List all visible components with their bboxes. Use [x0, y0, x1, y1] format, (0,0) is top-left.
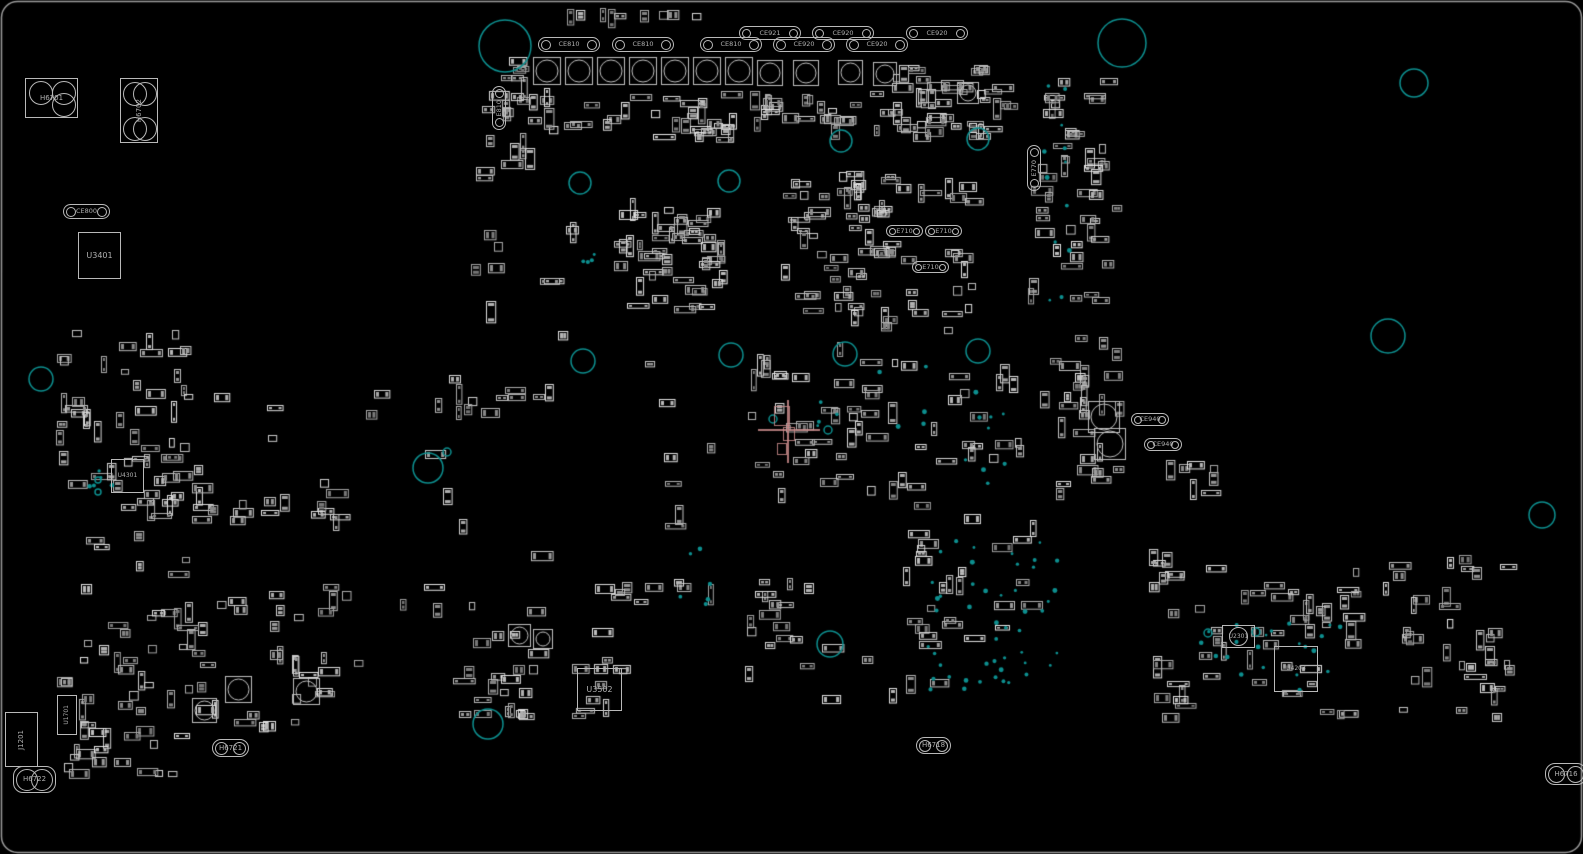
component-label: U1701 [64, 705, 70, 725]
pad-circle [703, 40, 713, 50]
pad-circle [66, 207, 76, 217]
component-e810[interactable]: E810 [492, 86, 506, 130]
pad-circle [495, 89, 504, 98]
component-label: CE940 [1139, 416, 1160, 423]
component-ce920[interactable]: CE920 [773, 37, 835, 52]
component-label: CE810 [632, 41, 653, 48]
pad-circle [895, 40, 905, 50]
component-e710[interactable]: E710 [925, 225, 962, 237]
component-h6702[interactable]: H6702 [120, 78, 158, 143]
component-label: U2301 [1229, 634, 1249, 640]
pcb-board-view[interactable]: H6701H6702CE800U3401CE810CE810CE810CE920… [0, 0, 1583, 854]
component-h6722[interactable]: H6722 [13, 766, 56, 793]
component-ce920[interactable]: CE920 [846, 37, 908, 52]
component-u4301[interactable]: U4301 [111, 459, 144, 493]
component-h6718[interactable]: H6718 [916, 737, 951, 754]
pad-circle [97, 207, 107, 217]
pad-circle [849, 40, 859, 50]
component-u3401[interactable]: U3401 [78, 232, 121, 279]
component-j1201[interactable]: J1201 [5, 712, 38, 767]
component-label: CE921 [759, 30, 780, 37]
pad-circle [889, 228, 896, 235]
pad-circle [615, 40, 625, 50]
component-label: H6702 [136, 99, 143, 122]
pad-circle [952, 228, 959, 235]
pad-circle [742, 29, 751, 38]
component-label: CE920 [926, 30, 947, 37]
component-h6716[interactable]: H6716 [1545, 763, 1583, 785]
component-label: U4301 [118, 473, 138, 479]
pad-circle [789, 29, 798, 38]
pad-circle [939, 264, 946, 271]
component-label: U3502 [586, 686, 612, 694]
pad-circle [862, 29, 871, 38]
pad-circle [928, 228, 935, 235]
pad-circle [1030, 179, 1039, 188]
component-ce940[interactable]: CE940 [1131, 413, 1169, 426]
pad-circle [495, 118, 504, 127]
component-label: J1201 [18, 730, 25, 750]
component-u1701[interactable]: U1701 [57, 695, 77, 735]
pad-circle [749, 40, 759, 50]
component-e710[interactable]: E710 [912, 261, 949, 273]
pad-circle [915, 264, 922, 271]
component-label: E770 [1031, 160, 1038, 177]
pad-circle [815, 29, 824, 38]
component-label: CE940 [1152, 441, 1173, 448]
component-ce800[interactable]: CE800 [63, 204, 110, 219]
pad-circle [776, 40, 786, 50]
component-label: E710 [896, 228, 913, 235]
component-ce920[interactable]: CE920 [906, 26, 968, 40]
component-label: CE920 [793, 41, 814, 48]
component-ce810[interactable]: CE810 [700, 37, 762, 52]
component-label: H6716 [1554, 771, 1577, 778]
component-label: U4203 [1286, 666, 1306, 672]
component-label: CE810 [558, 41, 579, 48]
component-label: H6701 [40, 95, 63, 102]
pad-circle [909, 29, 918, 38]
component-ce810[interactable]: CE810 [538, 37, 600, 52]
board-silkscreen-canvas [0, 0, 1583, 854]
component-ce940[interactable]: CE940 [1144, 438, 1182, 451]
component-e770[interactable]: E770 [1027, 145, 1041, 191]
component-u2301[interactable]: U2301 [1222, 625, 1255, 648]
component-label: U3401 [86, 252, 112, 260]
pad-circle [822, 40, 832, 50]
pad-circle [541, 40, 551, 50]
pad-circle [587, 40, 597, 50]
component-label: E810 [496, 100, 503, 117]
component-label: E710 [922, 264, 939, 271]
component-label: E710 [935, 228, 952, 235]
pad-circle [1030, 148, 1039, 157]
component-h6721[interactable]: H6721 [212, 739, 249, 757]
component-label: CE920 [832, 30, 853, 37]
component-h6701[interactable]: H6701 [25, 78, 78, 118]
component-ce920[interactable]: CE920 [812, 26, 874, 40]
component-u3502[interactable]: U3502 [577, 668, 622, 711]
component-label: H6718 [922, 742, 945, 749]
component-label: H6722 [23, 776, 46, 783]
component-label: CE810 [720, 41, 741, 48]
component-ce810[interactable]: CE810 [612, 37, 674, 52]
pad-circle [913, 228, 920, 235]
component-label: H6721 [219, 745, 242, 752]
component-label: CE920 [866, 41, 887, 48]
pad-circle [956, 29, 965, 38]
pad-circle [661, 40, 671, 50]
component-u4203[interactable]: U4203 [1274, 646, 1318, 692]
component-ce921[interactable]: CE921 [739, 26, 801, 40]
component-e710[interactable]: E710 [886, 225, 923, 237]
component-label: CE800 [76, 208, 97, 215]
